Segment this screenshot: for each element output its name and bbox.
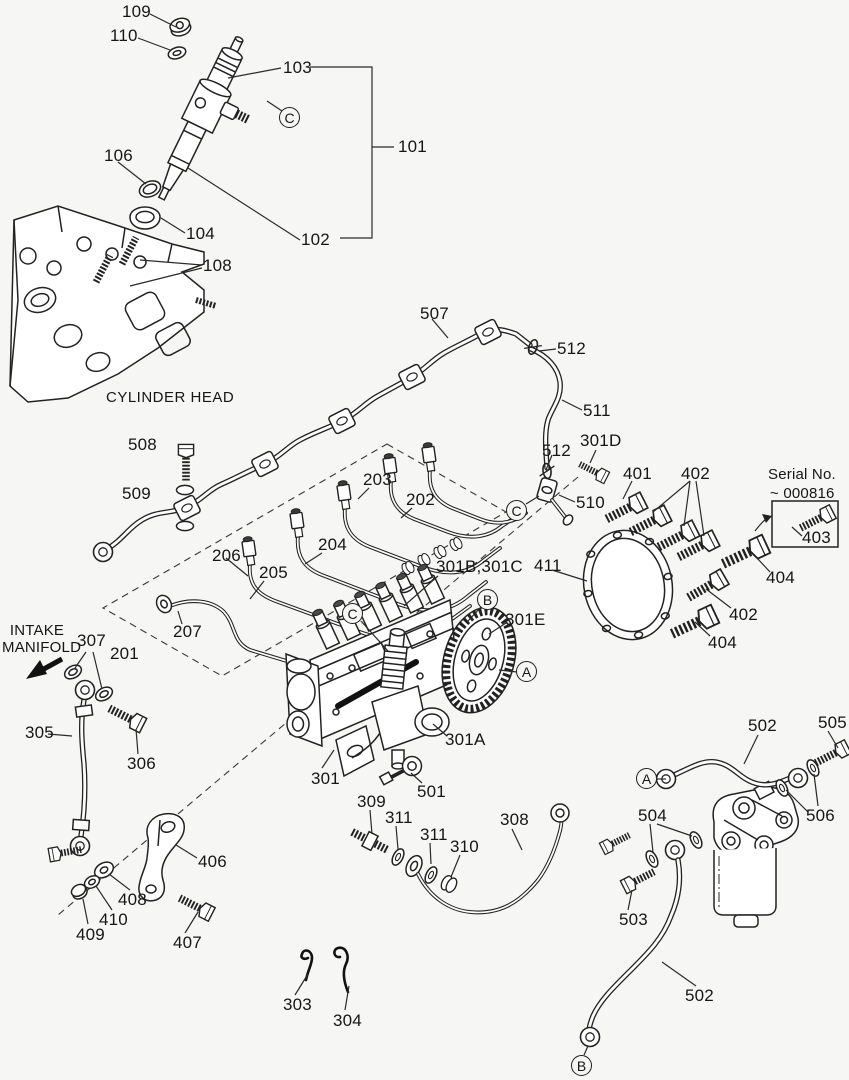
label-510: 510	[576, 493, 605, 513]
label-504: 504	[638, 806, 667, 826]
label-104: 104	[186, 224, 215, 244]
leak-off-rail-507	[94, 319, 531, 562]
label-manifold: MANIFOLD	[2, 639, 72, 656]
label-108: 108	[203, 256, 232, 276]
washer-509-upper	[177, 485, 194, 494]
view-marker-c-pump: C	[342, 603, 363, 624]
label-106: 106	[104, 146, 133, 166]
label-406: 406	[198, 852, 227, 872]
label-511: 511	[583, 401, 611, 421]
ring-307-b	[93, 684, 115, 703]
label-203: 203	[363, 470, 392, 490]
label-303: 303	[283, 995, 312, 1015]
gasket-411	[573, 522, 684, 648]
view-marker-b-pump: B	[477, 589, 498, 610]
parts-diagram: 109 110 103 101 106 104 102 108 CYLINDER…	[0, 0, 849, 1080]
label-306: 306	[127, 754, 156, 774]
bolt-503	[620, 865, 657, 893]
label-205: 205	[259, 563, 288, 583]
label-301A: 301A	[445, 730, 486, 750]
label-301: 301	[311, 769, 340, 789]
label-311-a: 311	[385, 808, 413, 828]
label-404-lower: 404	[708, 633, 737, 653]
label-304: 304	[333, 1011, 362, 1031]
washer-504-a	[644, 849, 661, 869]
view-marker-b-hose-end: B	[571, 1055, 592, 1076]
nozzle-seat-104	[130, 207, 160, 229]
label-502-lower: 502	[685, 986, 714, 1006]
label-512-upper: 512	[557, 339, 586, 359]
label-305: 305	[25, 723, 54, 743]
nut-310	[439, 874, 459, 894]
label-301BC: 301B,301C	[436, 557, 523, 577]
label-102: 102	[301, 230, 330, 250]
fuel-filter-drawing	[581, 740, 849, 1047]
label-206: 206	[212, 546, 241, 566]
label-intake: INTAKE	[2, 622, 72, 639]
label-403: 403	[802, 528, 831, 548]
view-marker-a-pump: A	[516, 661, 537, 682]
nut-109	[168, 16, 192, 38]
label-501: 501	[417, 782, 446, 802]
bolt-505	[812, 740, 849, 770]
label-502-upper: 502	[748, 716, 777, 736]
label-110: 110	[110, 26, 138, 46]
label-311-b: 311	[420, 825, 448, 845]
ring-307-a	[62, 662, 84, 681]
label-505: 505	[818, 713, 847, 733]
bolt-508	[178, 444, 193, 480]
label-103: 103	[283, 58, 312, 78]
label-411: 411	[534, 556, 562, 576]
label-507: 507	[420, 304, 449, 324]
label-207: 207	[173, 622, 202, 642]
label-201: 201	[110, 644, 139, 664]
label-509: 509	[122, 484, 151, 504]
label-310: 310	[450, 837, 479, 857]
washer-509-lower	[177, 521, 194, 530]
view-marker-c-injector: C	[279, 107, 300, 128]
label-408: 408	[118, 890, 147, 910]
washer-504-b	[688, 830, 705, 850]
pipe-308-eye	[403, 853, 425, 879]
label-512-lower: 512	[542, 441, 571, 461]
washer-311-b	[423, 865, 440, 885]
bolt-503-b	[599, 829, 632, 854]
view-marker-a-filter-hose: A	[636, 768, 657, 789]
label-409: 409	[76, 925, 105, 945]
label-401: 401	[623, 464, 652, 484]
joint-510	[536, 477, 557, 503]
label-506: 506	[806, 806, 835, 826]
label-109: 109	[122, 2, 151, 22]
label-508: 508	[128, 435, 157, 455]
label-407: 407	[173, 933, 202, 953]
label-301D: 301D	[580, 431, 621, 451]
callout-bracket-101	[310, 67, 394, 238]
label-307: 307	[77, 631, 106, 651]
label-cylinder-head: CYLINDER HEAD	[106, 389, 234, 406]
stud-309	[349, 825, 392, 857]
label-503: 503	[619, 910, 648, 930]
label-301E: 301E	[505, 610, 546, 630]
label-intake-manifold: INTAKE MANIFOLD	[2, 622, 72, 656]
label-308: 308	[500, 810, 529, 830]
label-309: 309	[357, 792, 386, 812]
washer-311-a	[390, 847, 407, 867]
label-402-lower: 402	[729, 605, 758, 625]
label-204: 204	[318, 535, 347, 555]
label-serial-line2: ~ 000816	[770, 485, 835, 502]
label-202: 202	[406, 490, 435, 510]
injector-drawing	[130, 16, 280, 229]
label-402-upper: 402	[681, 464, 710, 484]
bolt-306	[106, 701, 147, 733]
view-marker-c-joint: C	[506, 500, 527, 521]
bolt-301D	[577, 458, 610, 483]
label-serial-line1: Serial No.	[768, 466, 836, 483]
label-404-upper: 404	[766, 568, 795, 588]
washer-110	[167, 45, 188, 61]
label-101: 101	[398, 137, 427, 157]
clips-303-304	[301, 948, 348, 992]
